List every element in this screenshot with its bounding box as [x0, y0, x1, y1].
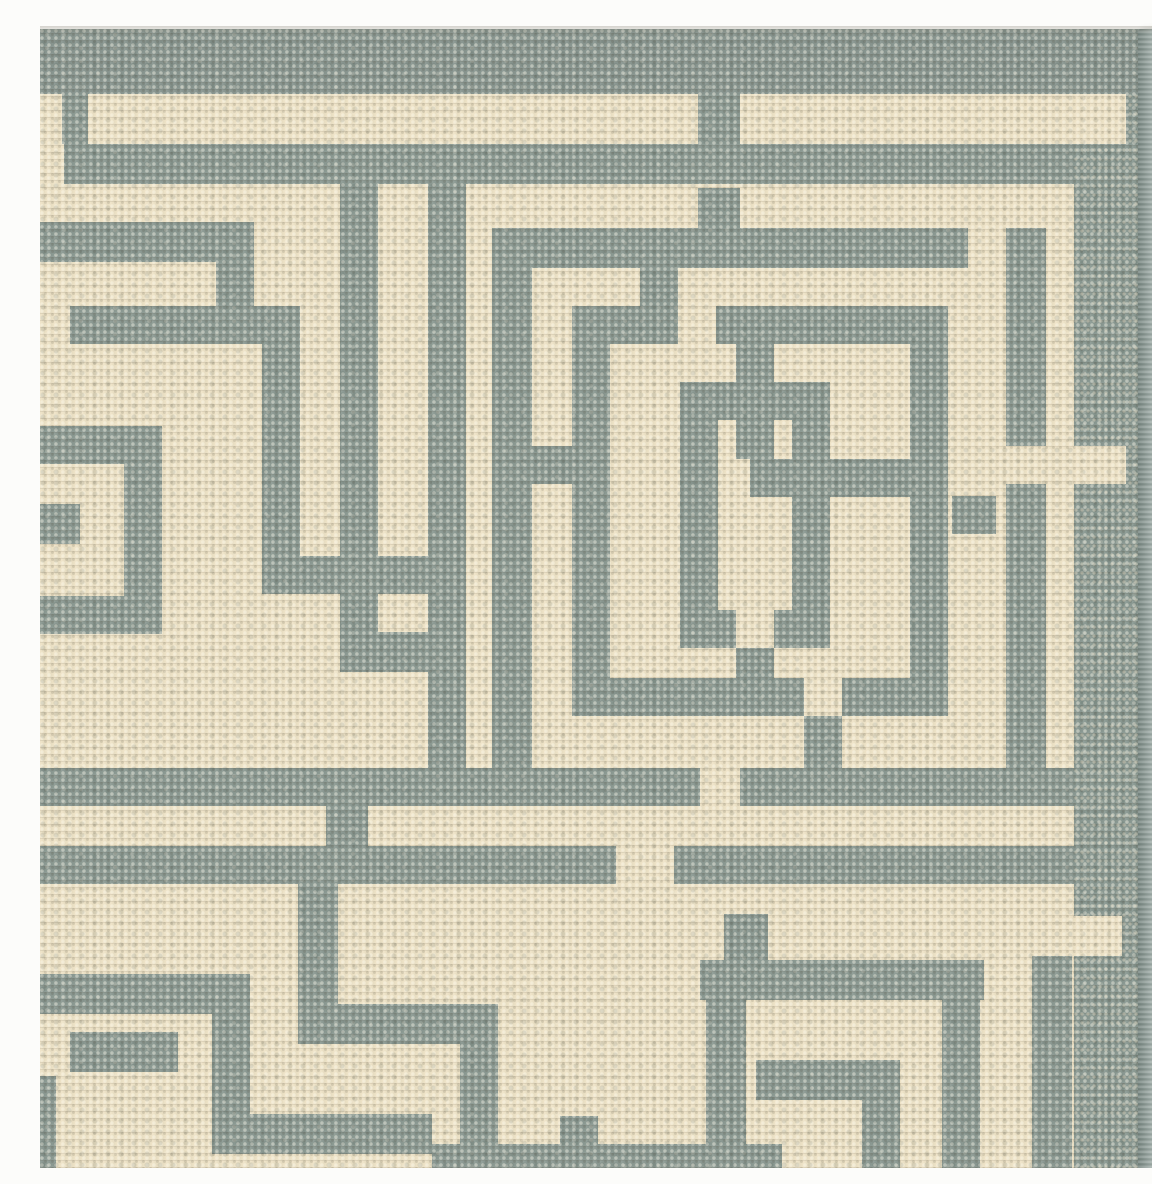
inner-square-bar: [572, 306, 610, 716]
serged-edge: [1138, 29, 1152, 1168]
top-frame-lines-bar: [40, 222, 254, 262]
lower-frame-lines-bar: [740, 768, 1074, 806]
top-connectors-bar: [698, 94, 740, 144]
lower-frame-lines-bar: [40, 846, 616, 884]
top-connectors-bar: [62, 94, 88, 144]
bottom-right-corner-bar: [756, 1060, 900, 1100]
left-key-motif-bar: [40, 504, 80, 544]
left-key-motif-bar: [340, 184, 378, 632]
outer-square-bar: [492, 228, 968, 268]
channel-dashes-bar: [698, 188, 740, 228]
binding-cream-notch: [1074, 446, 1126, 484]
center-interlock-bar: [774, 610, 830, 648]
bottom-left-key-bar: [40, 1076, 56, 1168]
outer-square-bar: [492, 268, 532, 768]
inner-square-bar: [804, 716, 842, 768]
left-key-motif-bar: [428, 184, 466, 768]
lower-frame-lines-bar: [326, 806, 368, 846]
center-interlock-bar: [736, 344, 774, 459]
binding-cream-notch: [1074, 916, 1122, 956]
center-interlock-bar: [680, 610, 736, 648]
bottom-left-key-bar: [212, 1114, 432, 1154]
inner-square-bar: [572, 678, 804, 716]
channel-dashes-bar: [952, 496, 996, 534]
bottom-left-key-bar: [212, 1014, 250, 1114]
inner-square-bar: [640, 266, 678, 306]
lower-frame-lines-bar: [674, 846, 1074, 884]
channel-dashes-bar: [532, 446, 572, 484]
bottom-right-corner-bar: [862, 1100, 900, 1168]
binding-cream-notch: [1074, 94, 1126, 144]
bottom-left-key-bar: [40, 974, 250, 1014]
lower-frame-lines-bar: [724, 914, 768, 960]
top-border-band: [40, 29, 1152, 94]
bottom-left-key-bar: [70, 1032, 178, 1072]
outer-square-bar: [1006, 484, 1046, 806]
center-interlock-bar: [680, 382, 718, 648]
bottom-right-corner-bar: [942, 1000, 980, 1168]
top-frame-lines-bar: [216, 262, 254, 306]
inner-square-bar: [842, 678, 948, 716]
right-binding-block: [1074, 94, 1138, 1168]
bottom-right-corner-bar: [700, 960, 984, 1000]
top-frame-lines-bar: [64, 144, 1074, 184]
bottom-right-corner-bar: [706, 1000, 746, 1144]
bottom-right-corner-bar: [432, 1144, 782, 1168]
left-key-motif-bar: [40, 596, 162, 634]
bottom-left-key-bar: [298, 1004, 498, 1044]
center-interlock-bar: [750, 459, 910, 497]
center-interlock-bar: [736, 648, 774, 678]
outer-square-bar: [1006, 228, 1046, 446]
center-interlock-bar: [792, 382, 830, 459]
inner-square-bar: [910, 306, 948, 716]
photo-background-top: [40, 16, 1152, 29]
lower-frame-lines-bar: [40, 768, 700, 806]
rug-photo: [40, 16, 1152, 1168]
bottom-right-corner-bar: [1032, 956, 1072, 1168]
rug-pattern-svg: [40, 16, 1152, 1168]
left-key-motif-bar: [262, 306, 300, 594]
